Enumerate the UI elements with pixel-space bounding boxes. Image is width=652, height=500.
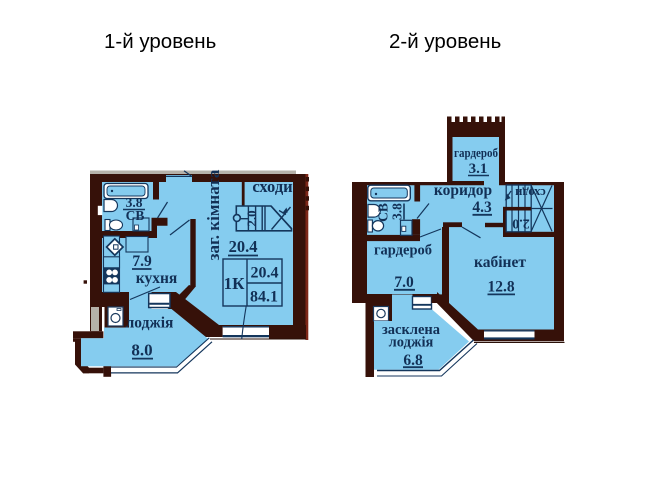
svg-text:4.3: 4.3 [472,199,492,216]
svg-text:1-й уровень: 1-й уровень [104,30,216,53]
svg-text:84.1: 84.1 [250,289,278,306]
svg-text:8.0: 8.0 [131,341,152,360]
svg-text:заг. кімната: заг. кімната [204,169,223,260]
svg-text:20.4: 20.4 [229,237,258,256]
svg-text:12.8: 12.8 [487,279,514,296]
svg-text:гардероб: гардероб [454,145,498,160]
svg-text:коридор: коридор [434,182,492,199]
svg-text:7.9: 7.9 [132,253,152,270]
svg-text:7.0: 7.0 [394,274,414,291]
svg-text:гардероб: гардероб [374,243,432,259]
svg-text:2.0: 2.0 [512,216,530,231]
svg-text:3.1: 3.1 [469,161,488,177]
svg-text:СВ: СВ [376,203,391,222]
svg-text:2.0: 2.0 [244,210,259,226]
svg-text:1К: 1К [224,274,246,293]
svg-text:лоджія: лоджія [389,335,434,351]
svg-text:сходи: сходи [252,177,293,196]
svg-text:3.8: 3.8 [390,203,405,220]
svg-text:20.4: 20.4 [251,265,279,282]
svg-text:СВ: СВ [126,208,145,223]
svg-text:кухня: кухня [136,270,178,287]
svg-text:сходи: сходи [515,186,546,200]
svg-text:2-й уровень: 2-й уровень [389,30,501,53]
svg-text:кабінет: кабінет [474,254,526,271]
svg-text:лоджія: лоджія [126,315,174,332]
